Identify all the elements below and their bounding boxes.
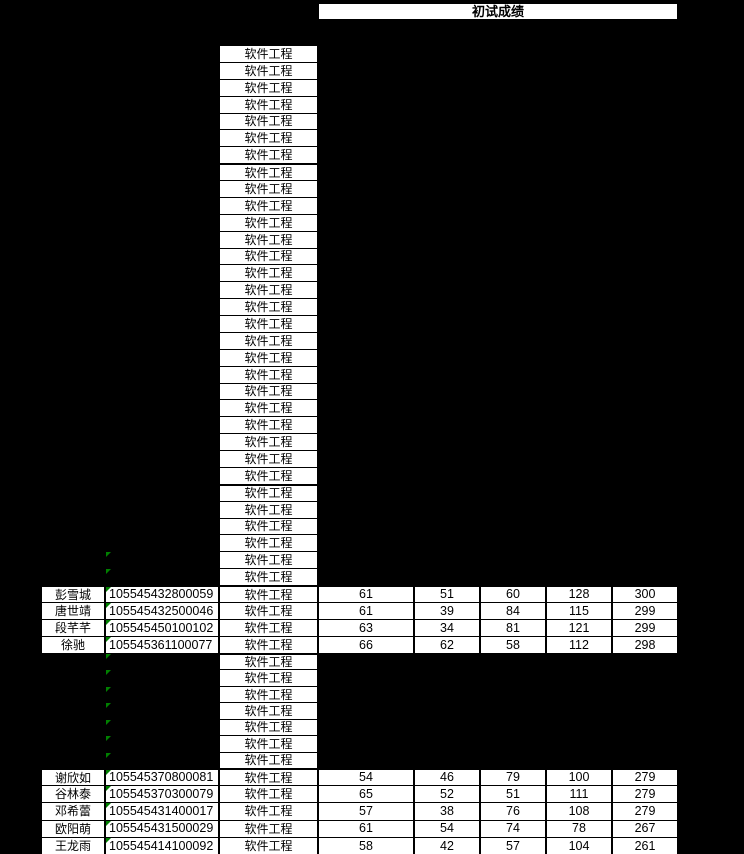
- score-cell[interactable]: 79: [480, 768, 546, 786]
- name-cell[interactable]: 唐世靖: [41, 602, 105, 620]
- major-cell[interactable]: 软件工程: [219, 686, 318, 703]
- error-indicator-triangle-icon: [106, 770, 111, 775]
- major-cell[interactable]: 软件工程: [219, 231, 318, 249]
- score-cell[interactable]: 111: [546, 785, 612, 803]
- major-cell[interactable]: 软件工程: [219, 484, 318, 502]
- header-cell-exam-score[interactable]: 初试成绩: [318, 3, 678, 20]
- error-indicator-triangle-icon: [106, 703, 111, 708]
- major-cell[interactable]: 软件工程: [219, 383, 318, 401]
- major-cell[interactable]: 软件工程: [219, 768, 318, 786]
- score-cell[interactable]: 261: [612, 837, 678, 854]
- major-cell[interactable]: 软件工程: [219, 197, 318, 215]
- error-indicator-triangle-icon: [106, 670, 111, 675]
- score-cell[interactable]: 52: [414, 785, 480, 803]
- name-cell[interactable]: 邓希蕾: [41, 802, 105, 820]
- score-cell[interactable]: 128: [546, 585, 612, 603]
- score-cell[interactable]: 60: [480, 585, 546, 603]
- error-indicator-triangle-icon: [106, 786, 111, 791]
- error-indicator-triangle-icon: [106, 603, 111, 608]
- major-cell[interactable]: 软件工程: [219, 802, 318, 820]
- score-cell[interactable]: 61: [318, 820, 414, 838]
- major-cell[interactable]: 软件工程: [219, 752, 318, 769]
- major-cell[interactable]: 软件工程: [219, 45, 318, 63]
- major-cell[interactable]: 软件工程: [219, 96, 318, 114]
- score-cell[interactable]: 54: [414, 820, 480, 838]
- score-cell[interactable]: 57: [480, 837, 546, 854]
- student-id-cell[interactable]: 105545414100092: [105, 837, 219, 854]
- major-cell[interactable]: 软件工程: [219, 735, 318, 752]
- student-id-cell[interactable]: 105545450100102: [105, 619, 219, 637]
- score-cell[interactable]: 300: [612, 585, 678, 603]
- score-cell[interactable]: 279: [612, 785, 678, 803]
- name-cell[interactable]: 谢欣如: [41, 768, 105, 786]
- major-cell[interactable]: 软件工程: [219, 450, 318, 468]
- major-cell[interactable]: 软件工程: [219, 129, 318, 147]
- major-cell[interactable]: 软件工程: [219, 332, 318, 350]
- major-cell[interactable]: 软件工程: [219, 79, 318, 97]
- error-indicator-triangle-icon: [106, 736, 111, 741]
- major-cell[interactable]: 软件工程: [219, 146, 318, 164]
- major-cell[interactable]: 软件工程: [219, 366, 318, 384]
- major-cell[interactable]: 软件工程: [219, 180, 318, 198]
- major-cell[interactable]: 软件工程: [219, 315, 318, 333]
- major-cell[interactable]: 软件工程: [219, 248, 318, 266]
- score-cell[interactable]: 54: [318, 768, 414, 786]
- score-cell[interactable]: 76: [480, 802, 546, 820]
- error-indicator-triangle-icon: [106, 620, 111, 625]
- major-cell[interactable]: 软件工程: [219, 820, 318, 838]
- score-cell[interactable]: 279: [612, 768, 678, 786]
- major-cell[interactable]: 软件工程: [219, 501, 318, 519]
- student-id-cell[interactable]: 105545361100077: [105, 636, 219, 654]
- major-cell[interactable]: 软件工程: [219, 568, 318, 586]
- score-cell[interactable]: 84: [480, 602, 546, 620]
- score-cell[interactable]: 100: [546, 768, 612, 786]
- major-cell[interactable]: 软件工程: [219, 785, 318, 803]
- major-cell[interactable]: 软件工程: [219, 518, 318, 536]
- score-cell[interactable]: 57: [318, 802, 414, 820]
- major-cell[interactable]: 软件工程: [219, 214, 318, 232]
- score-cell[interactable]: 66: [318, 636, 414, 654]
- major-cell[interactable]: 软件工程: [219, 837, 318, 854]
- score-cell[interactable]: 34: [414, 619, 480, 637]
- major-cell[interactable]: 软件工程: [219, 534, 318, 552]
- error-indicator-triangle-icon: [106, 654, 111, 659]
- score-cell[interactable]: 78: [546, 820, 612, 838]
- major-cell[interactable]: 软件工程: [219, 298, 318, 316]
- score-cell[interactable]: 104: [546, 837, 612, 854]
- major-cell[interactable]: 软件工程: [219, 264, 318, 282]
- major-cell[interactable]: 软件工程: [219, 281, 318, 299]
- score-cell[interactable]: 81: [480, 619, 546, 637]
- student-id-cell[interactable]: 105545370800081: [105, 768, 219, 786]
- score-cell[interactable]: 74: [480, 820, 546, 838]
- major-cell[interactable]: 软件工程: [219, 62, 318, 80]
- error-indicator-triangle-icon: [106, 569, 111, 574]
- score-cell[interactable]: 279: [612, 802, 678, 820]
- name-cell[interactable]: 王龙雨: [41, 837, 105, 854]
- score-cell[interactable]: 58: [480, 636, 546, 654]
- major-cell[interactable]: 软件工程: [219, 433, 318, 451]
- student-id-cell[interactable]: 105545370300079: [105, 785, 219, 803]
- score-cell[interactable]: 298: [612, 636, 678, 654]
- major-cell[interactable]: 软件工程: [219, 349, 318, 367]
- major-cell[interactable]: 软件工程: [219, 636, 318, 654]
- score-cell[interactable]: 115: [546, 602, 612, 620]
- major-cell[interactable]: 软件工程: [219, 399, 318, 417]
- student-id-cell[interactable]: 105545431500029: [105, 820, 219, 838]
- student-id-cell[interactable]: 105545431400017: [105, 802, 219, 820]
- score-cell[interactable]: 61: [318, 602, 414, 620]
- score-cell[interactable]: 61: [318, 585, 414, 603]
- score-cell[interactable]: 51: [414, 585, 480, 603]
- major-cell[interactable]: 软件工程: [219, 551, 318, 569]
- name-cell[interactable]: 段芊芊: [41, 619, 105, 637]
- score-cell[interactable]: 65: [318, 785, 414, 803]
- score-cell[interactable]: 38: [414, 802, 480, 820]
- score-cell[interactable]: 112: [546, 636, 612, 654]
- major-cell[interactable]: 软件工程: [219, 719, 318, 736]
- score-cell[interactable]: 63: [318, 619, 414, 637]
- error-indicator-triangle-icon: [106, 821, 111, 826]
- major-cell[interactable]: 软件工程: [219, 669, 318, 686]
- major-cell[interactable]: 软件工程: [219, 163, 318, 181]
- error-indicator-triangle-icon: [106, 637, 111, 642]
- major-cell[interactable]: 软件工程: [219, 585, 318, 603]
- major-cell[interactable]: 软件工程: [219, 113, 318, 131]
- score-cell[interactable]: 121: [546, 619, 612, 637]
- name-cell[interactable]: 谷林泰: [41, 785, 105, 803]
- score-cell[interactable]: 51: [480, 785, 546, 803]
- major-cell[interactable]: 软件工程: [219, 602, 318, 620]
- student-id-cell[interactable]: 105545432500046: [105, 602, 219, 620]
- error-indicator-triangle-icon: [106, 838, 111, 843]
- score-cell[interactable]: 62: [414, 636, 480, 654]
- error-indicator-triangle-icon: [106, 753, 111, 758]
- score-cell[interactable]: 299: [612, 602, 678, 620]
- score-cell[interactable]: 299: [612, 619, 678, 637]
- error-indicator-triangle-icon: [106, 720, 111, 725]
- student-id-cell[interactable]: 105545432800059: [105, 585, 219, 603]
- major-cell[interactable]: 软件工程: [219, 467, 318, 485]
- major-cell[interactable]: 软件工程: [219, 653, 318, 670]
- name-cell[interactable]: 欧阳萌: [41, 820, 105, 838]
- score-cell[interactable]: 267: [612, 820, 678, 838]
- spreadsheet: 初试成绩 软件工程软件工程软件工程软件工程软件工程软件工程软件工程软件工程软件工…: [0, 0, 744, 854]
- name-cell[interactable]: 彭雪城: [41, 585, 105, 603]
- name-cell[interactable]: 徐驰: [41, 636, 105, 654]
- major-cell[interactable]: 软件工程: [219, 416, 318, 434]
- error-indicator-triangle-icon: [106, 587, 111, 592]
- score-cell[interactable]: 46: [414, 768, 480, 786]
- major-cell[interactable]: 软件工程: [219, 619, 318, 637]
- major-cell[interactable]: 软件工程: [219, 702, 318, 719]
- error-indicator-triangle-icon: [106, 803, 111, 808]
- score-cell[interactable]: 108: [546, 802, 612, 820]
- error-indicator-triangle-icon: [106, 687, 111, 692]
- score-cell[interactable]: 58: [318, 837, 414, 854]
- error-indicator-triangle-icon: [106, 552, 111, 557]
- score-cell[interactable]: 42: [414, 837, 480, 854]
- score-cell[interactable]: 39: [414, 602, 480, 620]
